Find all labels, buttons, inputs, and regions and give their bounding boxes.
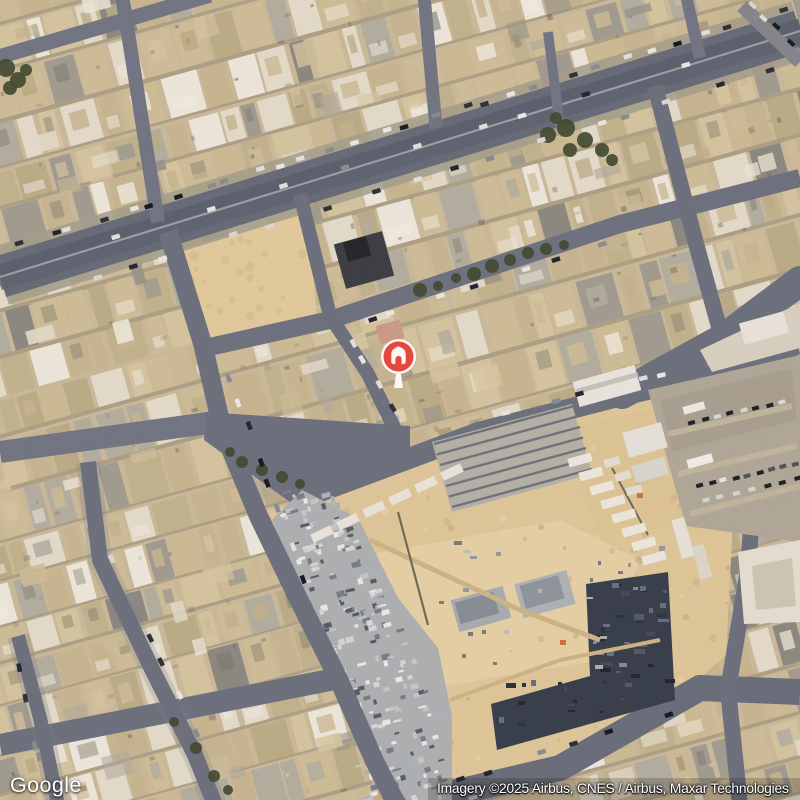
svg-text:Imagery ©2025 Airbus, CNES / A: Imagery ©2025 Airbus, CNES / Airbus, Max… bbox=[437, 781, 789, 796]
svg-text:Google: Google bbox=[10, 773, 82, 797]
